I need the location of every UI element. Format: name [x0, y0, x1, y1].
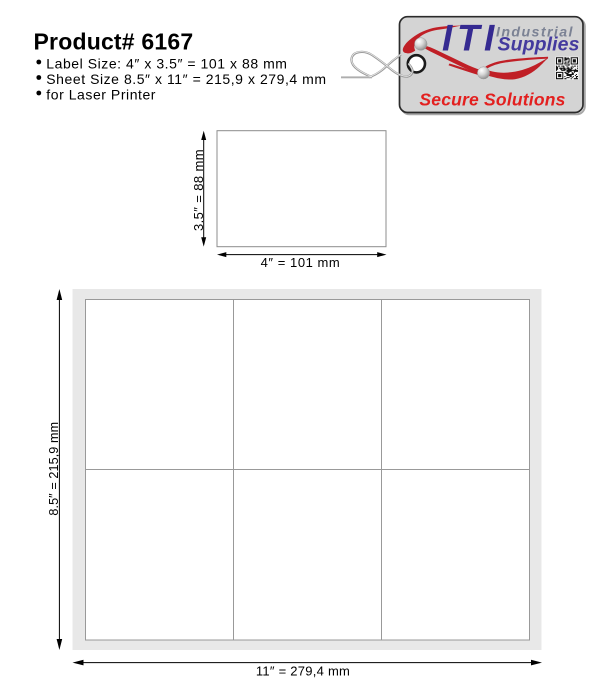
svg-text:Label Size: 4″ x 3.5″ = 101 x: Label Size: 4″ x 3.5″ = 101 x 88 mm — [46, 56, 287, 72]
svg-text:4″ = 101 mm: 4″ = 101 mm — [261, 255, 341, 270]
svg-text:8.5″ = 215,9 mm: 8.5″ = 215,9 mm — [47, 422, 61, 516]
svg-text:Product# 6167: Product# 6167 — [34, 29, 194, 55]
svg-text:Secure Solutions: Secure Solutions — [419, 90, 565, 110]
svg-text:Sheet Size 8.5″ x 11″ = 215,9: Sheet Size 8.5″ x 11″ = 215,9 x 279,4 mm — [46, 71, 326, 87]
svg-text:Supplies: Supplies — [498, 34, 580, 56]
svg-text:11″ = 279,4 mm: 11″ = 279,4 mm — [256, 664, 350, 679]
svg-text:3.5″ = 88 mm: 3.5″ = 88 mm — [191, 149, 206, 231]
svg-text:for Laser Printer: for Laser Printer — [46, 87, 156, 103]
svg-text:T: T — [457, 17, 483, 58]
svg-text:I: I — [484, 17, 495, 58]
svg-text:I: I — [442, 17, 453, 58]
